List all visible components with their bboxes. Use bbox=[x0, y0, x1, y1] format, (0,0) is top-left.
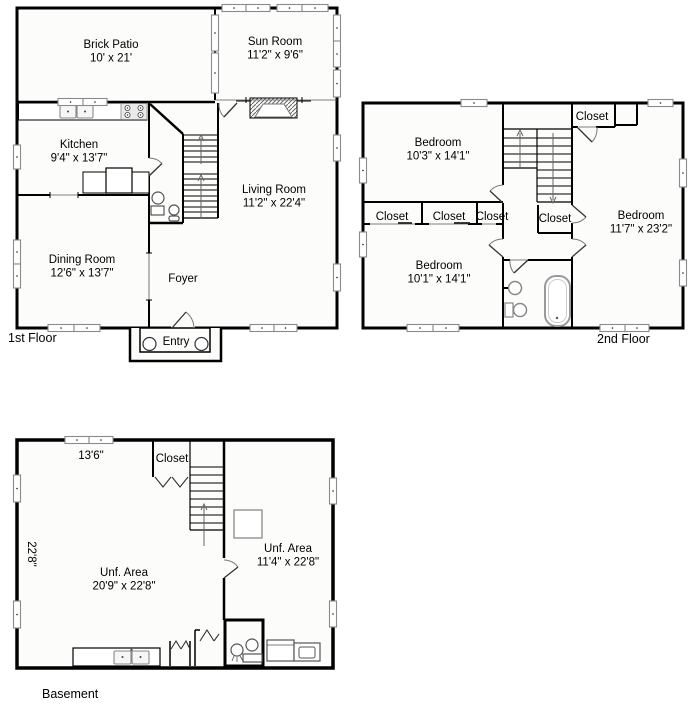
closet-label: Closet bbox=[376, 211, 409, 223]
room-dims-living-room: 11'2" x 22'4" bbox=[243, 198, 305, 210]
basement-plan: 13'6" Closet 22'8" Unf. Area 20'9" x 22'… bbox=[14, 437, 337, 702]
first-floor-plan: Brick Patio 10' x 21' Sun Room 11'2" x 9… bbox=[8, 5, 341, 362]
toilet-base bbox=[169, 216, 179, 221]
room-label-living-room: Living Room bbox=[242, 184, 306, 196]
room-dims-kitchen: 9'4" x 13'7" bbox=[51, 153, 108, 165]
closet-label: Closet bbox=[156, 453, 189, 465]
room-dims-bedroom-1: 10'3" x 14'1" bbox=[406, 151, 469, 163]
room-dims-bedroom-2: 10'1" x 14'1" bbox=[407, 274, 470, 286]
porch-column-icon bbox=[143, 338, 156, 351]
dimension-width: 13'6" bbox=[78, 450, 103, 462]
room-dims-dining-room: 12'6" x 13'7" bbox=[50, 268, 113, 280]
closet-label: Closet bbox=[576, 111, 609, 123]
room-label-unf-area-right: Unf. Area bbox=[264, 543, 313, 555]
room-label-bedroom-1: Bedroom bbox=[415, 137, 462, 149]
room-label-unf-area-left: Unf. Area bbox=[100, 567, 149, 579]
room-label-brick-patio: Brick Patio bbox=[84, 39, 139, 51]
floorplan-drawing: Brick Patio 10' x 21' Sun Room 11'2" x 9… bbox=[0, 0, 700, 705]
sink-icon bbox=[152, 192, 164, 204]
floor-title-first: 1st Floor bbox=[8, 331, 57, 345]
furnace-icon bbox=[234, 510, 262, 538]
dimension-depth: 22'8" bbox=[25, 541, 37, 566]
room-label-kitchen: Kitchen bbox=[60, 139, 98, 151]
toilet-icon bbox=[514, 304, 527, 317]
room-dims-sun-room: 11'2" x 9'6" bbox=[247, 50, 303, 62]
room-label-foyer: Foyer bbox=[168, 273, 198, 285]
second-floor-plan: Bedroom 10'3" x 14'1" Closet Bedroom 11'… bbox=[360, 100, 687, 347]
entry-label: Entry bbox=[163, 336, 190, 348]
sink-base bbox=[151, 206, 164, 215]
closet-label: Closet bbox=[476, 211, 509, 223]
closet-label: Closet bbox=[433, 211, 466, 223]
kitchen-sink-icon bbox=[60, 105, 93, 118]
floorplan-page: Brick Patio 10' x 21' Sun Room 11'2" x 9… bbox=[0, 0, 700, 705]
laundry-sink-icon bbox=[114, 649, 149, 664]
porch-column-icon bbox=[195, 338, 208, 351]
room-dims-bedroom-3: 11'7" x 23'2" bbox=[610, 224, 672, 236]
closet-label: Closet bbox=[539, 213, 572, 225]
room-label-sun-room: Sun Room bbox=[248, 36, 302, 48]
room-label-dining-room: Dining Room bbox=[49, 254, 115, 266]
fireplace-icon bbox=[250, 98, 297, 118]
washer-dryer-icon bbox=[267, 640, 320, 661]
floor-title-second: 2nd Floor bbox=[597, 332, 650, 346]
toilet-base bbox=[243, 654, 262, 662]
floor-title-basement: Basement bbox=[42, 687, 99, 701]
dishwasher-icon bbox=[106, 168, 132, 193]
toilet-icon bbox=[169, 205, 179, 215]
sink-icon bbox=[509, 282, 522, 295]
room-dims-brick-patio: 10' x 21' bbox=[90, 53, 132, 65]
sink-icon bbox=[231, 644, 243, 656]
room-dims-unf-area-right: 11'4" x 22'8" bbox=[257, 557, 319, 569]
toilet-icon bbox=[246, 639, 258, 651]
room-dims-unf-area-left: 20'9" x 22'8" bbox=[92, 581, 155, 593]
room-label-bedroom-2: Bedroom bbox=[416, 260, 463, 272]
room-label-bedroom-3: Bedroom bbox=[618, 210, 665, 222]
toilet-tank bbox=[505, 303, 513, 317]
stove-icon bbox=[121, 104, 147, 120]
